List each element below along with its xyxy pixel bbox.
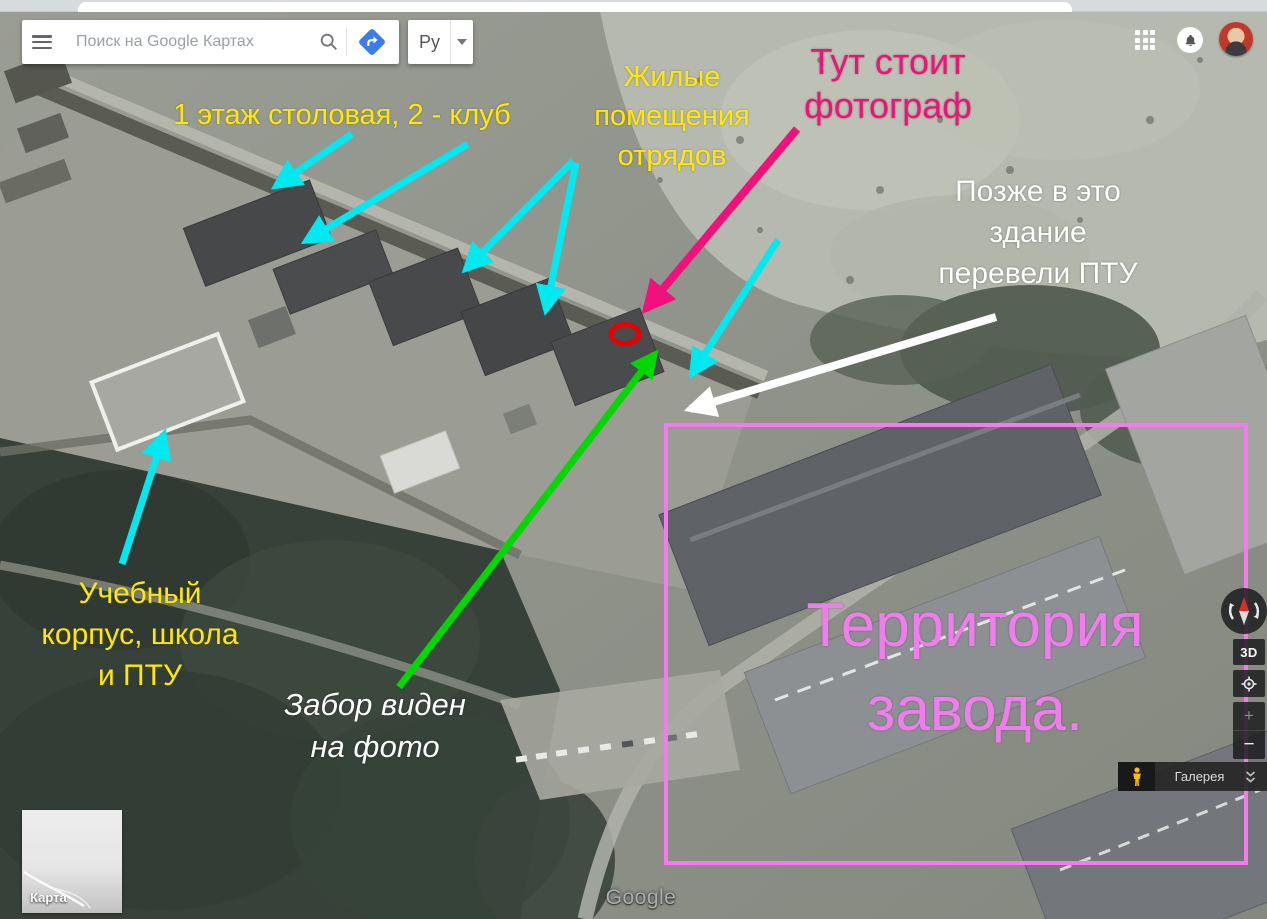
search-icon[interactable] bbox=[318, 31, 340, 53]
search-bar bbox=[22, 20, 399, 64]
language-label[interactable]: Ру bbox=[419, 32, 440, 53]
language-selector: Ру bbox=[408, 20, 473, 64]
search-divider bbox=[346, 28, 347, 56]
annotation-uchebny: Учебный корпус, школа и ПТУ bbox=[20, 574, 260, 696]
google-maps-screen: 1 этаж столовая, 2 - клуб Жилые помещени… bbox=[0, 0, 1267, 919]
annotation-zhilye: Жилые помещения отрядов bbox=[556, 58, 788, 176]
3d-view-button[interactable]: 3D bbox=[1233, 639, 1265, 665]
zoom-out-button[interactable]: − bbox=[1233, 730, 1265, 759]
annotation-territoriya: Территория завода. bbox=[735, 584, 1215, 753]
notifications-bell-icon[interactable] bbox=[1177, 27, 1203, 53]
google-apps-icon[interactable] bbox=[1135, 30, 1155, 50]
search-input[interactable] bbox=[74, 32, 318, 52]
browser-strip bbox=[0, 0, 1267, 12]
pegman-icon[interactable] bbox=[1118, 762, 1155, 791]
hamburger-menu-icon[interactable] bbox=[32, 35, 52, 49]
directions-icon[interactable] bbox=[359, 29, 385, 55]
gallery-bar: Галерея bbox=[1118, 762, 1267, 791]
annotation-stolovaya: 1 этаж столовая, 2 - клуб bbox=[130, 96, 554, 135]
zoom-controls: + − bbox=[1233, 702, 1265, 759]
google-watermark: Google bbox=[586, 886, 696, 910]
compass-icon[interactable] bbox=[1221, 588, 1267, 634]
zoom-in-button[interactable]: + bbox=[1233, 702, 1265, 730]
annotation-fotograf: Тут стоит фотограф bbox=[780, 40, 996, 128]
annotation-zabor: Забор виден на фото bbox=[258, 684, 492, 768]
language-dropdown-caret-icon[interactable] bbox=[451, 39, 473, 45]
my-location-button[interactable] bbox=[1233, 670, 1265, 697]
account-avatar[interactable] bbox=[1219, 22, 1253, 56]
minimap-label: Карта bbox=[30, 890, 67, 905]
minimap-toggle[interactable]: Карта bbox=[22, 810, 122, 913]
collapse-gallery-icon[interactable] bbox=[1244, 770, 1257, 784]
browser-urlbar-edge bbox=[78, 2, 1072, 12]
gallery-label[interactable]: Галерея bbox=[1155, 769, 1244, 784]
annotation-pozzhe: Позже в это здание перевели ПТУ bbox=[910, 172, 1166, 294]
